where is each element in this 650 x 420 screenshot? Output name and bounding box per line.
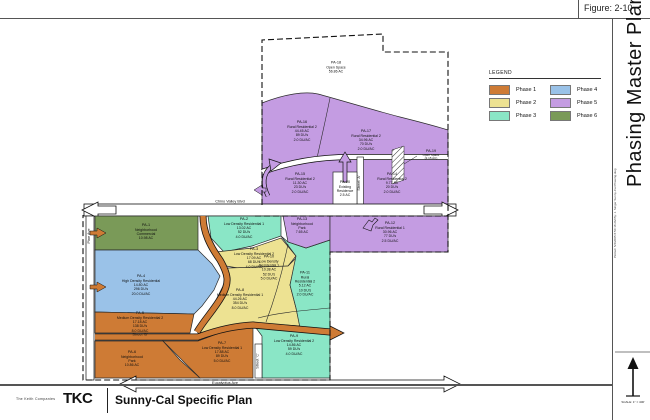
north-arrowhead-icon [628, 357, 639, 369]
phase-2-swatch [489, 98, 510, 108]
plan-map: Chino Valley Blvd Eucalyptus Ave Street … [0, 0, 650, 420]
tkc-logo: TKC [63, 390, 92, 407]
phase-3-swatch [489, 111, 510, 121]
legend-item-phase-6: Phase 6 [550, 109, 601, 122]
road-label-street-b: Street 'B' [132, 333, 147, 337]
company-name: The Keith Companies [16, 397, 55, 401]
phase-4-swatch [550, 85, 571, 95]
road-chino-valley-blvd [84, 204, 456, 216]
phase-1-label: Phase 1 [516, 87, 536, 93]
legend-grid: Phase 1 Phase 2 Phase 3 Phase 4 Phase 5 … [489, 83, 601, 122]
phase-5-label: Phase 5 [577, 100, 597, 106]
figure-divider [578, 0, 579, 18]
legend: LEGEND Phase 1 Phase 2 Phase 3 Phase 4 P… [489, 70, 601, 122]
phasing-master-plan-page: { "figure": { "label": "Figure: 2-10" },… [0, 0, 650, 420]
legend-item-phase-1: Phase 1 [489, 83, 540, 96]
phase-2-label: Phase 2 [516, 100, 536, 106]
street-arrow-east-icon [330, 326, 344, 340]
phase-6-swatch [550, 111, 571, 121]
legend-item-phase-4: Phase 4 [550, 83, 601, 96]
road-label-chino: Chino Valley Blvd [215, 200, 244, 204]
phase-3-label: Phase 3 [516, 113, 536, 119]
plan-title: Sunny-Cal Specific Plan [115, 393, 252, 407]
sheet-title: Phasing Master Plan [616, 0, 650, 300]
legend-title: LEGEND [489, 70, 601, 79]
legend-item-phase-3: Phase 3 [489, 109, 540, 122]
print-info: Plotted: 5/4/2005 8:50:18 AM By: J. Sing… [613, 0, 617, 258]
parcel-pa1 [95, 216, 198, 250]
parcel-pa12 [330, 216, 448, 252]
phase-5-swatch [550, 98, 571, 108]
parcel-pa4 [95, 250, 220, 314]
titleblock-rule [0, 384, 612, 386]
parcel-pa19-hatch [392, 146, 404, 184]
legend-item-phase-5: Phase 5 [550, 96, 601, 109]
plan-map-drawing: Chino Valley Blvd Eucalyptus Ave Street … [0, 0, 650, 420]
road-label-pine: Pine Ave [87, 229, 91, 244]
parcel-pa5 [95, 312, 194, 333]
top-rule [0, 18, 650, 19]
phase-1-swatch [489, 85, 510, 95]
road-label-street-c: Street 'C' [256, 353, 260, 369]
phase-4-label: Phase 4 [577, 87, 597, 93]
road-label-street-a: Street 'A' [357, 175, 361, 190]
phase-6-label: Phase 6 [577, 113, 597, 119]
legend-item-phase-2: Phase 2 [489, 96, 540, 109]
scale-note: SCALE: 1" = 400' [621, 400, 645, 404]
titleblock-divider [107, 388, 108, 413]
